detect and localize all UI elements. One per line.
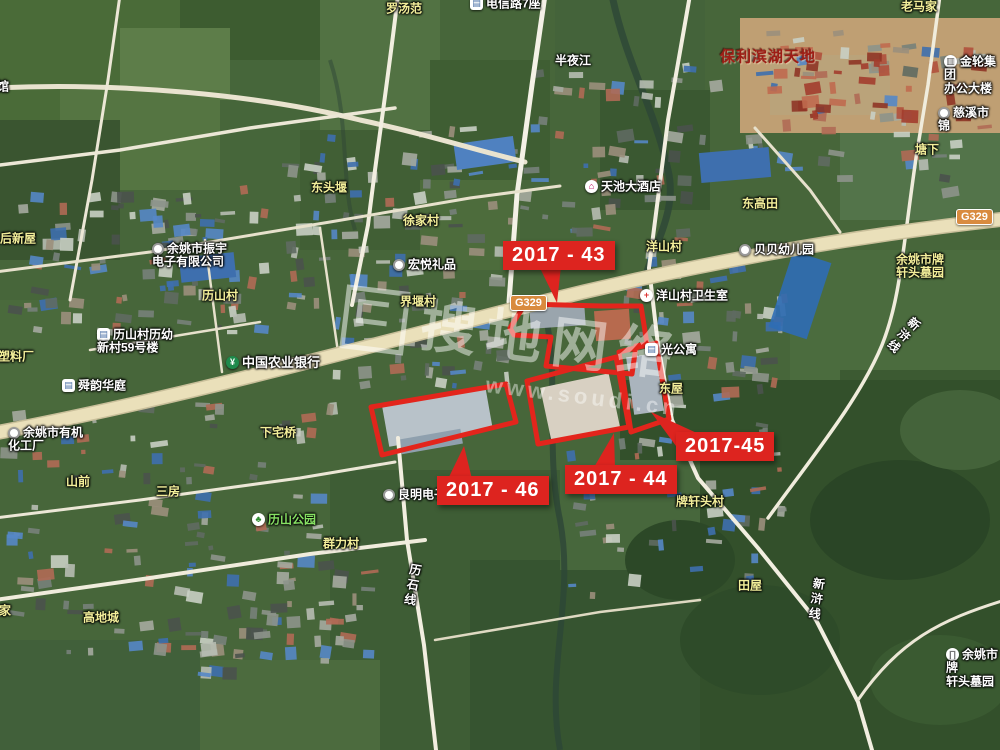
place-label-guan: 馆: [0, 80, 9, 93]
cemetery-gate-icon: ∏: [946, 648, 959, 661]
place-label-cemetery: ∏余姚市牌 轩头墓园: [946, 648, 1000, 688]
building-icon: ▤: [645, 343, 658, 356]
place-label-shunyun-huating: ▤舜韵华庭: [62, 379, 126, 392]
place-label-tianwu: 田屋: [738, 579, 762, 592]
bank-icon: ¥: [226, 356, 239, 369]
place-label-cixishijin: 慈溪市锦: [938, 106, 1000, 133]
place-label-paixuantoucun: 牌轩头村: [676, 495, 724, 508]
place-label-sanfang: 三房: [156, 485, 180, 498]
place-label-laomajia: 老马家: [901, 0, 937, 13]
poi-dot-icon: [938, 107, 950, 119]
poi-dot-icon: [8, 427, 20, 439]
poi-dot-icon: [739, 244, 751, 256]
road-badge-g329-east: G329: [956, 209, 993, 225]
place-label-tangxia: 塘下: [915, 143, 939, 156]
place-label-lishancun: 历山村: [202, 289, 238, 302]
place-label-chaili: 余姚市牌 轩头墓园: [896, 253, 944, 280]
place-label-lishan-park: ♣历山公园: [252, 513, 316, 526]
place-label-youji-chemical: 余姚市有机 化工厂: [8, 426, 83, 453]
building-icon: ▤: [470, 0, 483, 10]
place-label-dongwu: 东屋: [659, 382, 683, 395]
place-label-guang-apartment: ▤光公寓: [645, 343, 697, 356]
place-label-lishan-xincun-59: ▤历山村历幼 新村59号楼: [97, 328, 173, 355]
parcel-tag-2017-46: 2017 - 46: [437, 476, 549, 505]
place-label-zhenyu-electronics: 余姚市振宇 电子有限公司: [152, 242, 227, 269]
place-label-gaodicheng: 高地城: [83, 611, 119, 624]
parcel-tag-2017-45: 2017-45: [676, 432, 774, 461]
farm-fields: [0, 0, 1000, 750]
park-tree-icon: ♣: [252, 513, 265, 526]
place-label-suliaochang: 塑料厂: [0, 350, 34, 363]
place-label-jinlun-group: ▥金轮集团 办公大楼: [944, 55, 1000, 95]
place-label-tianchi-hotel: ⌂天池大酒店: [585, 180, 661, 193]
place-label-xiazhaiqiao: 下宅桥: [260, 426, 296, 439]
place-label-qunlicun: 群力村: [323, 537, 359, 550]
place-label-xujiacun: 徐家村: [403, 214, 439, 227]
building-icon: ▤: [97, 328, 110, 341]
place-label-hongyue-gifts: 宏悦礼品: [393, 258, 456, 271]
poi-dot-icon: [383, 489, 395, 501]
place-label-luotangfan: 罗汤范: [386, 2, 422, 15]
place-label-jieyancun: 界堰村: [400, 295, 436, 308]
place-label-xuanjia: 轩家: [0, 604, 11, 617]
place-label-agricultural-bank: ¥中国农业银行: [226, 355, 320, 369]
place-label-banyejiang: 半夜江: [555, 54, 591, 67]
place-label-yangshancun: 洋山村: [646, 240, 682, 253]
clinic-cross-icon: +: [640, 289, 653, 302]
parcel-tag-2017-44: 2017 - 44: [565, 465, 677, 494]
place-label-baoli-binhu: 保利滨湖天地: [720, 50, 816, 64]
satellite-map-screenshot: 搜地网络 www.soudi.cn G329 G329 2017 - 43 20…: [0, 0, 1000, 750]
building-icon: ▤: [62, 379, 75, 392]
place-label-yangshan-clinic: +洋山村卫生室: [640, 289, 728, 302]
place-label-dongtouyan: 东头堰: [311, 181, 347, 194]
place-label-donggaotian: 东高田: [742, 197, 778, 210]
road-badge-g329-west: G329: [510, 295, 547, 311]
office-building-icon: ▥: [944, 55, 957, 68]
satellite-basemap: [0, 0, 1000, 750]
poi-dot-icon: [393, 259, 405, 271]
place-label-houxinwu: 后新屋: [0, 232, 36, 245]
place-label-shanqian: 山前: [66, 475, 90, 488]
hotel-icon: ⌂: [585, 180, 598, 193]
place-label-dianxinlu: ▤电信路7座: [470, 0, 541, 10]
parcel-tag-2017-43: 2017 - 43: [503, 241, 615, 270]
poi-dot-icon: [152, 243, 164, 255]
place-label-beibei-kindergarten: 贝贝幼儿园: [739, 243, 814, 256]
